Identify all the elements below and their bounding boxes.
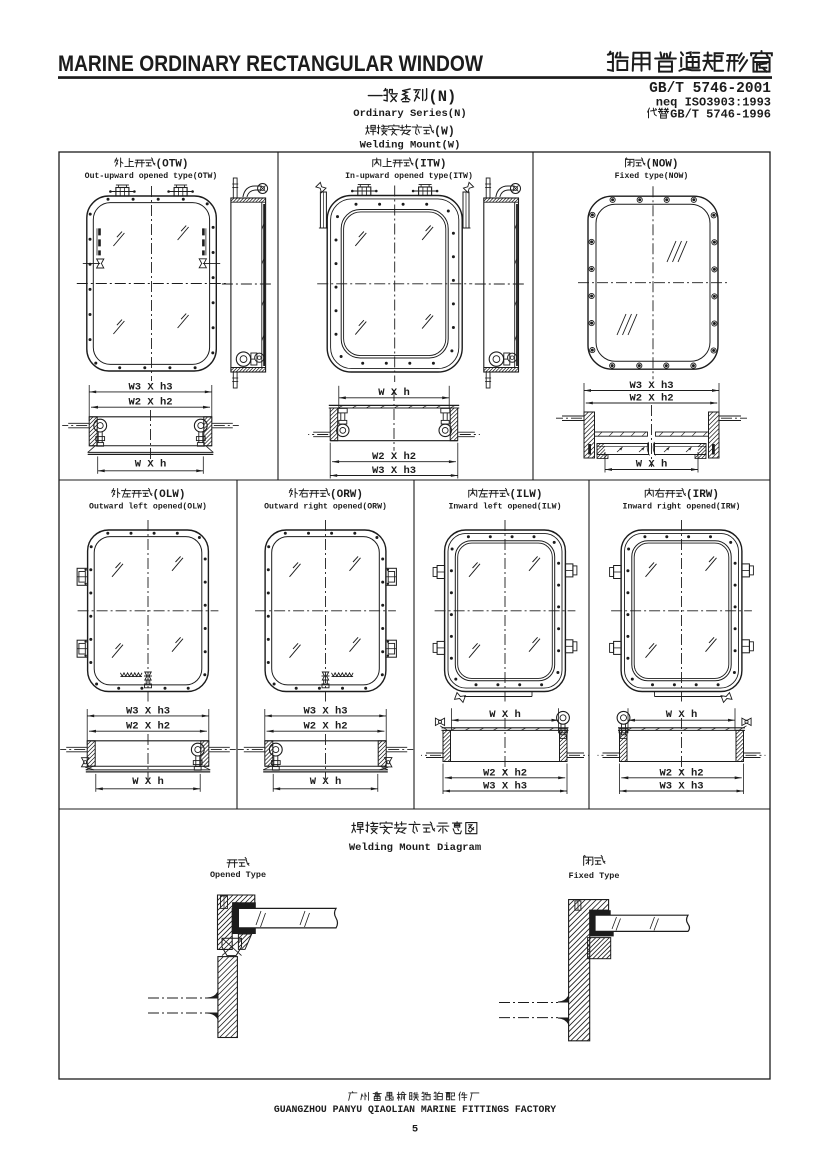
- svg-text:(OTW): (OTW): [156, 158, 189, 170]
- svg-text:Welding Mount Diagram: Welding Mount Diagram: [349, 842, 481, 854]
- svg-text:Out-upward opened type(OTW): Out-upward opened type(OTW): [85, 171, 218, 181]
- svg-text:Inward right opened(IRW): Inward right opened(IRW): [623, 502, 741, 512]
- svg-text:Outward left opened(OLW): Outward left opened(OLW): [89, 502, 207, 512]
- svg-text:Outward right opened(ORW): Outward right opened(ORW): [264, 502, 387, 512]
- svg-text:W X h: W X h: [310, 776, 342, 788]
- svg-text:Welding Mount(W): Welding Mount(W): [360, 140, 461, 152]
- svg-text:GUANGZHOU PANYU QIAOLIAN MARIN: GUANGZHOU PANYU QIAOLIAN MARINE FITTINGS…: [274, 1104, 556, 1115]
- svg-text:5: 5: [412, 1124, 418, 1136]
- svg-text:Ordinary Series(N): Ordinary Series(N): [353, 108, 466, 120]
- svg-text:Inward left opened(ILW): Inward left opened(ILW): [448, 502, 561, 512]
- svg-text:(ITW): (ITW): [414, 158, 447, 170]
- svg-text:(N): (N): [428, 88, 456, 106]
- svg-text:(NOW): (NOW): [646, 158, 679, 170]
- svg-text:Fixed Type: Fixed Type: [568, 871, 619, 881]
- svg-text:In-upward opened type(ITW): In-upward opened type(ITW): [345, 171, 473, 181]
- svg-text:(ILW): (ILW): [510, 489, 543, 501]
- svg-text:(OLW): (OLW): [153, 489, 186, 501]
- svg-text:W X h: W X h: [135, 459, 167, 471]
- svg-text:W X h: W X h: [132, 776, 164, 788]
- svg-text:Opened Type: Opened Type: [210, 870, 266, 880]
- svg-text:(ORW): (ORW): [330, 489, 363, 501]
- svg-text:(IRW): (IRW): [686, 489, 719, 501]
- svg-text:W X h: W X h: [636, 459, 668, 471]
- svg-text:GB/T 5746-1996: GB/T 5746-1996: [670, 107, 771, 121]
- svg-text:MARINE ORDINARY RECTANGULAR WI: MARINE ORDINARY RECTANGULAR WINDOW: [58, 51, 484, 76]
- svg-text:Fixed type(NOW): Fixed type(NOW): [615, 171, 689, 181]
- svg-text:(W): (W): [434, 125, 455, 138]
